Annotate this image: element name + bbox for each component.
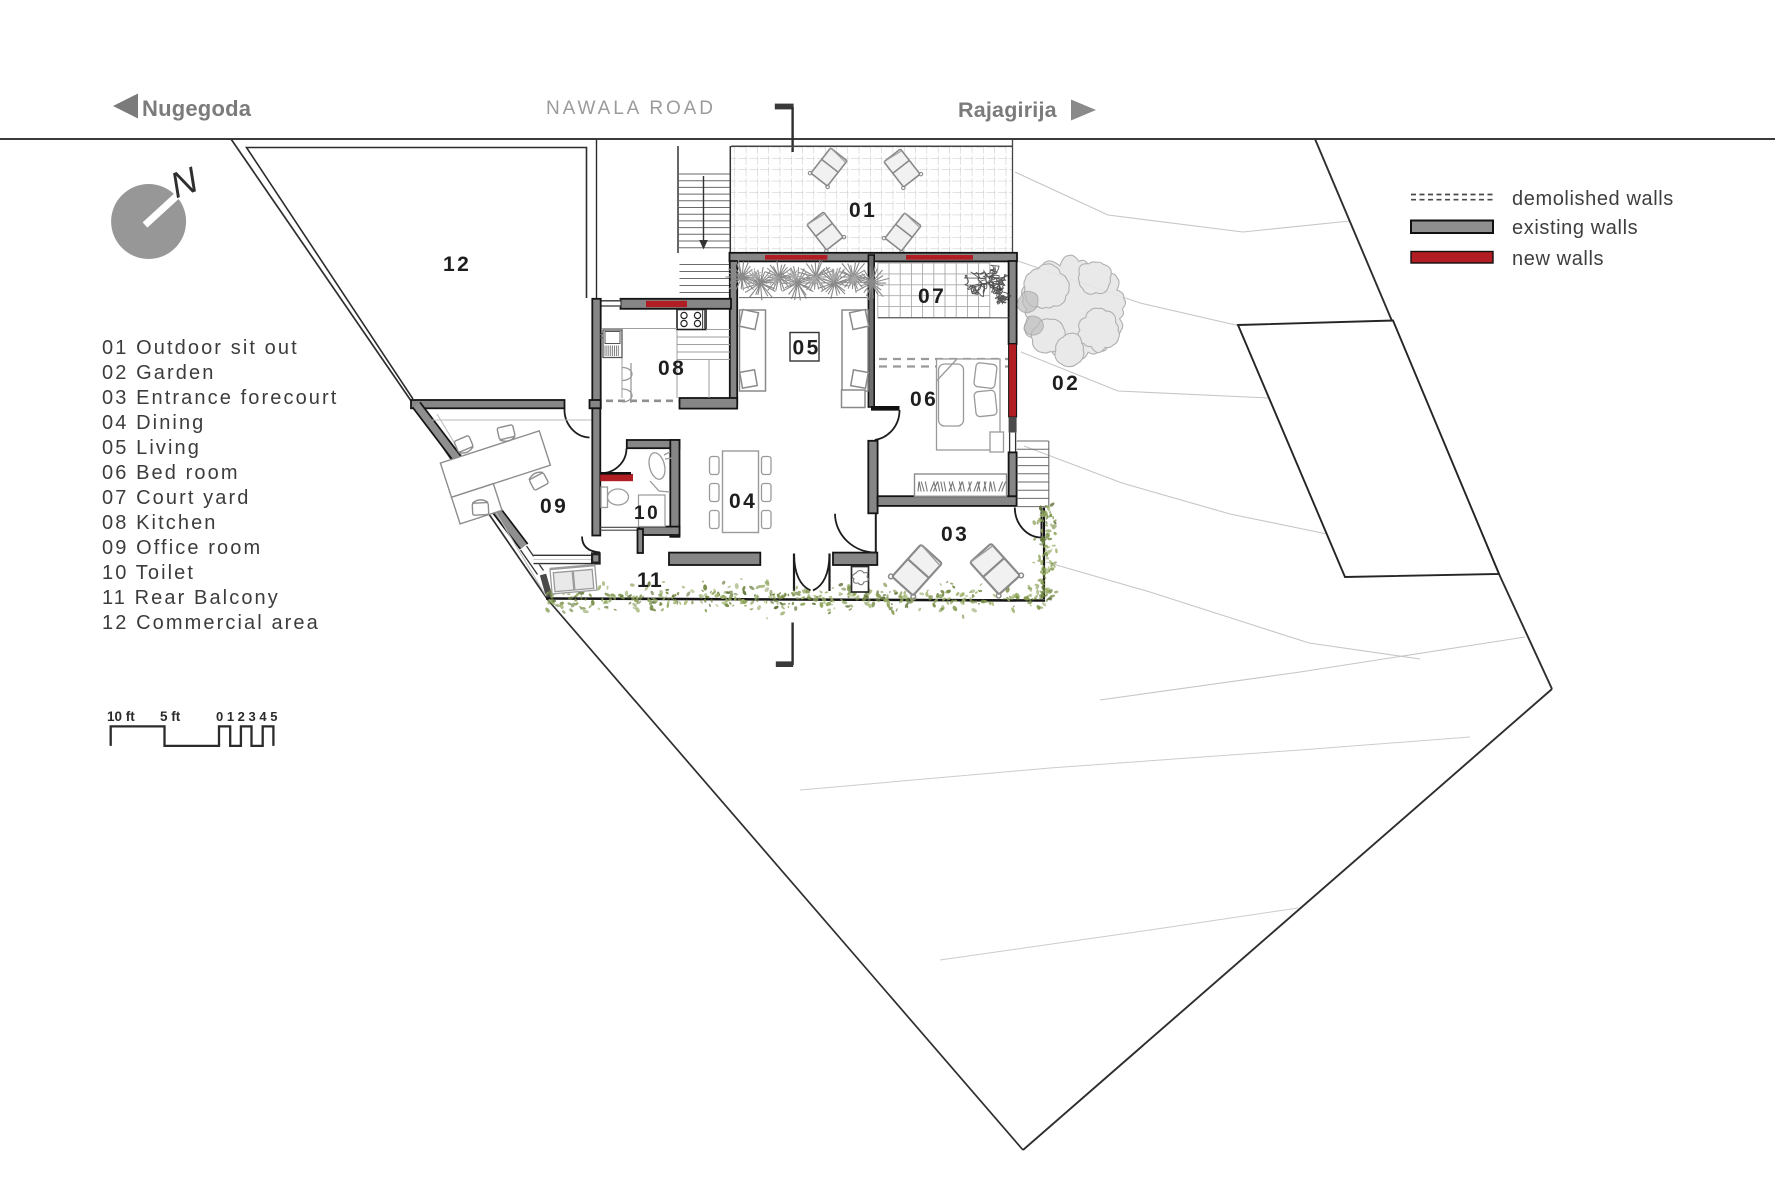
svg-text:existing walls: existing walls (1512, 217, 1638, 239)
svg-text:07: 07 (918, 285, 946, 308)
svg-text:06 Bed room: 06 Bed room (102, 462, 240, 484)
svg-text:10: 10 (634, 503, 660, 524)
svg-text:05 Living: 05 Living (102, 437, 201, 459)
svg-text:01: 01 (849, 199, 877, 222)
svg-text:03 Entrance forecourt: 03 Entrance forecourt (102, 387, 338, 409)
svg-text:10 Toilet: 10 Toilet (102, 562, 195, 584)
svg-text:0 1 2 3 4 5: 0 1 2 3 4 5 (216, 709, 277, 724)
svg-text:12: 12 (443, 253, 471, 276)
svg-text:04: 04 (729, 490, 757, 513)
svg-text:new walls: new walls (1512, 248, 1604, 270)
svg-text:Rajagirija: Rajagirija (958, 98, 1058, 122)
svg-text:02 Garden: 02 Garden (102, 362, 215, 384)
svg-text:12 Commercial area: 12 Commercial area (102, 612, 320, 634)
svg-text:demolished walls: demolished walls (1512, 188, 1674, 210)
svg-text:11 Rear Balcony: 11 Rear Balcony (102, 587, 280, 609)
svg-text:11: 11 (637, 569, 664, 592)
svg-text:09: 09 (540, 495, 568, 518)
svg-text:08 Kitchen: 08 Kitchen (102, 512, 218, 534)
svg-text:07 Court yard: 07 Court yard (102, 487, 250, 509)
svg-text:02: 02 (1052, 372, 1080, 395)
svg-text:NAWALA ROAD: NAWALA ROAD (546, 98, 716, 119)
svg-text:Nugegoda: Nugegoda (142, 96, 252, 121)
svg-text:5 ft: 5 ft (160, 709, 181, 724)
svg-text:04 Dining: 04 Dining (102, 412, 205, 434)
svg-text:05: 05 (793, 337, 821, 360)
svg-text:10 ft: 10 ft (107, 709, 135, 724)
svg-text:08: 08 (658, 357, 686, 380)
svg-text:06: 06 (910, 388, 938, 411)
svg-text:09 Office room: 09 Office room (102, 537, 262, 559)
svg-text:03: 03 (941, 523, 969, 546)
svg-text:01 Outdoor sit out: 01 Outdoor sit out (102, 337, 299, 359)
